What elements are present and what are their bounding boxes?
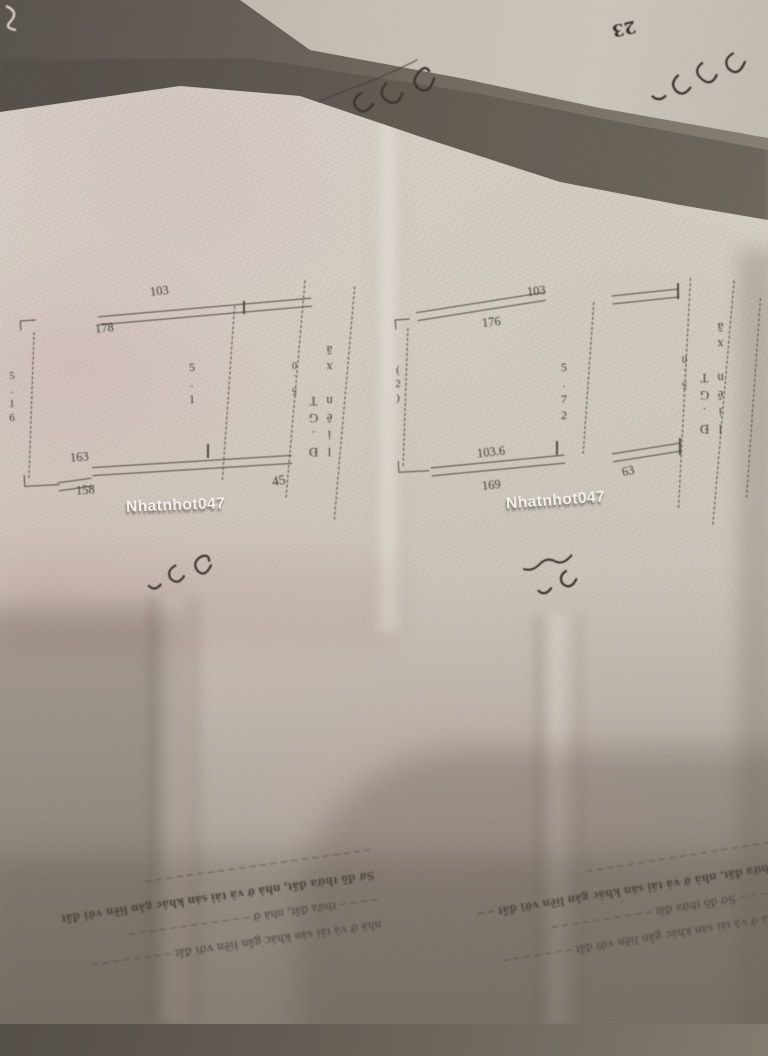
- boundary-end-bar: [677, 283, 679, 299]
- road-dashed-line: [746, 298, 761, 498]
- boundary-tick: [207, 444, 209, 458]
- plot-dimension: 5.1: [184, 360, 199, 424]
- left-page-form-text: nhà ở và tài sản khác gắn liền với đất –…: [0, 839, 383, 994]
- page-gutter-fold: [372, 92, 406, 632]
- boundary-corner-mark: [24, 473, 60, 487]
- boundary-corner-mark: [395, 318, 411, 329]
- plot-dimension: 5.16: [6, 370, 18, 446]
- adjacent-parcel-number: 45: [271, 472, 287, 490]
- road-width-dimension: 5.0: [289, 350, 300, 396]
- photo-watermark: Nhatnhot047: [505, 489, 605, 514]
- left-plot-left-boundary: [28, 332, 34, 478]
- road-name-label: Đ.GT liên xã: [697, 313, 729, 437]
- adjacent-parcel-number: 63: [621, 463, 636, 480]
- left-plot-center-dashed-line: [222, 306, 235, 480]
- road-name-label: Đ.GT liên xã: [306, 326, 338, 460]
- adjacent-parcel-number: 176: [481, 314, 501, 331]
- boundary-corner-mark: [398, 459, 430, 473]
- corner-scribble: [2, 2, 36, 32]
- right-page-form-text: nhà ở và tài sản khác gắn liền với đất –…: [373, 831, 768, 992]
- boundary-corner-mark: [20, 319, 37, 330]
- handwriting-scribble: [136, 548, 220, 596]
- adjacent-parcel-number: 163: [69, 449, 89, 465]
- handwriting-scribble: [509, 544, 585, 604]
- right-plot-center-dashed-line: [583, 302, 595, 454]
- adjacent-parcel-number: 158: [75, 482, 95, 498]
- road-dashed-line: [678, 278, 691, 508]
- photo-watermark: Nhatnhot047: [126, 495, 226, 516]
- right-plot-top-right-boundary: [612, 289, 680, 305]
- road-width-dimension: 5.0: [679, 346, 690, 390]
- left-plot-bottom-boundary: [92, 455, 292, 476]
- adjacent-parcel-number: 103: [526, 283, 546, 300]
- adjacent-parcel-number: 103: [149, 283, 169, 300]
- adjacent-parcel-number: 103.6: [476, 444, 506, 462]
- adjacent-parcel-number: 169: [481, 477, 501, 494]
- adjacent-parcel-number: 178: [94, 320, 114, 337]
- left-plot-top-boundary: [98, 298, 312, 326]
- boundary-tick: [556, 441, 558, 455]
- plot-dimension: (2): [392, 364, 404, 424]
- right-plot-bottom-right-boundary: [612, 443, 682, 463]
- plot-dimension: 5.72: [556, 360, 571, 430]
- boundary-tick: [243, 301, 245, 314]
